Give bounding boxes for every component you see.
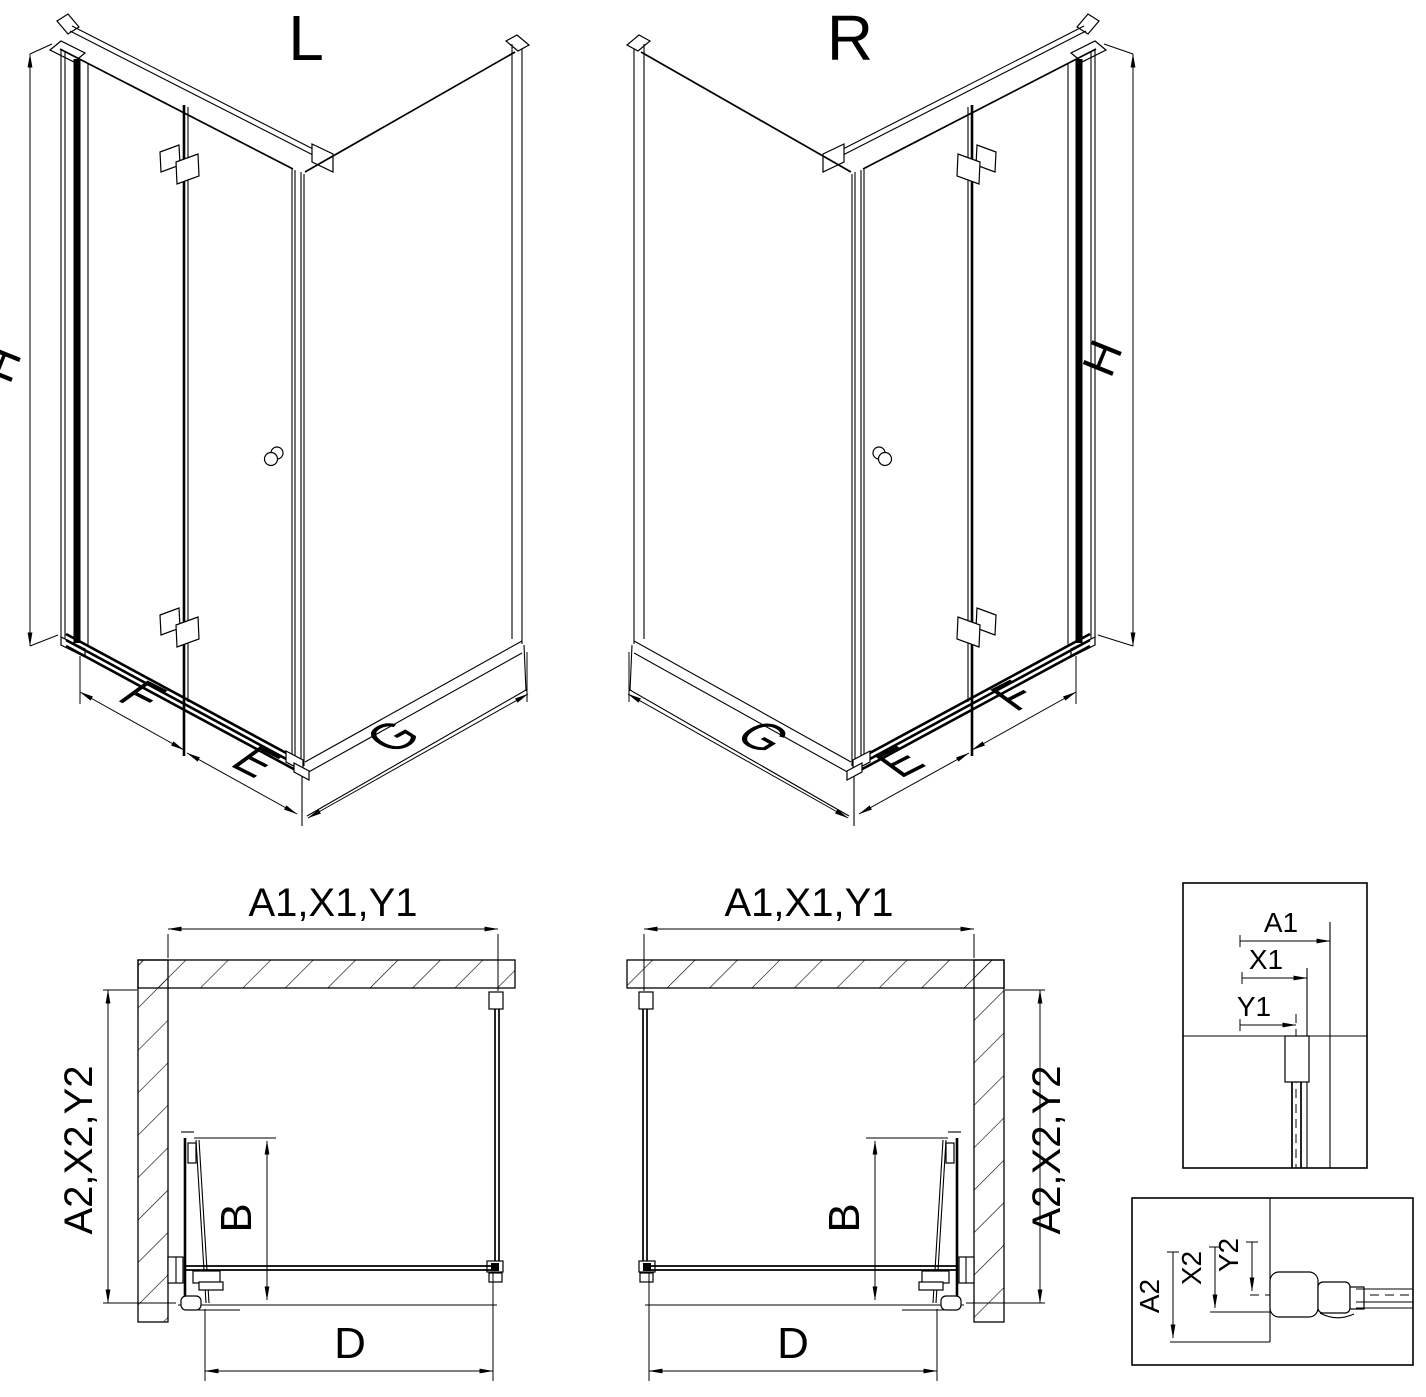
view-right-label: R (827, 2, 873, 74)
dim-a1-right: A1,X1,Y1 (724, 881, 893, 925)
folded-door-plan-right (902, 1132, 961, 1310)
walls-plan-right (627, 960, 1004, 1322)
dim-a2-right: A2,X2,Y2 (1025, 1065, 1069, 1234)
dim-d-right: D (777, 1319, 809, 1368)
dim-d-left: D (334, 1319, 366, 1368)
view-left-label: L (288, 2, 324, 74)
iso-view-right: R (627, 2, 1133, 826)
side-panel-right (627, 35, 854, 826)
dim-b-left: B (212, 1203, 261, 1232)
plan-left-dimensions: A1,X1,Y1 A2,X2,Y2 B D (57, 881, 498, 1381)
dim-b-right: B (820, 1203, 869, 1232)
glass-walls-plan-left (168, 992, 503, 1305)
corner-post-left (301, 172, 304, 766)
dim-h-left: H (0, 339, 31, 389)
detail-depth-dims: A2 X2 Y2 (1132, 1198, 1413, 1365)
dim-a2-left: A2,X2,Y2 (57, 1065, 101, 1234)
detail-dim-a1: A1 (1264, 907, 1298, 938)
iso-view-left: L (0, 2, 529, 826)
glass-walls-plan-right (639, 992, 974, 1305)
wall-profile-left (50, 41, 88, 657)
detail-dim-x1: X1 (1249, 944, 1283, 975)
detail-dim-y1: Y1 (1237, 991, 1271, 1022)
door-knob-right (879, 453, 892, 466)
detail-dim-a2: A2 (1134, 1279, 1165, 1313)
corner-post-right (852, 172, 855, 766)
dim-a1-left: A1,X1,Y1 (248, 881, 417, 925)
detail-dim-y2: Y2 (1213, 1238, 1244, 1272)
door-knob-left (265, 453, 278, 466)
drawing-canvas: L (0, 0, 1426, 1397)
side-panel-left (302, 35, 529, 826)
technical-drawing-sheet: L (0, 0, 1426, 1397)
detail-width-dims: A1 X1 Y1 (1183, 883, 1367, 1168)
plan-view-right: A1,X1,Y1 A2,X2,Y2 B D (627, 881, 1069, 1381)
detail-dim-x2: X2 (1176, 1251, 1207, 1285)
walls-plan-left (138, 960, 515, 1322)
plan-view-left: A1,X1,Y1 A2,X2,Y2 B D (57, 881, 515, 1381)
plan-right-dimensions: A1,X1,Y1 A2,X2,Y2 B D (644, 881, 1069, 1381)
